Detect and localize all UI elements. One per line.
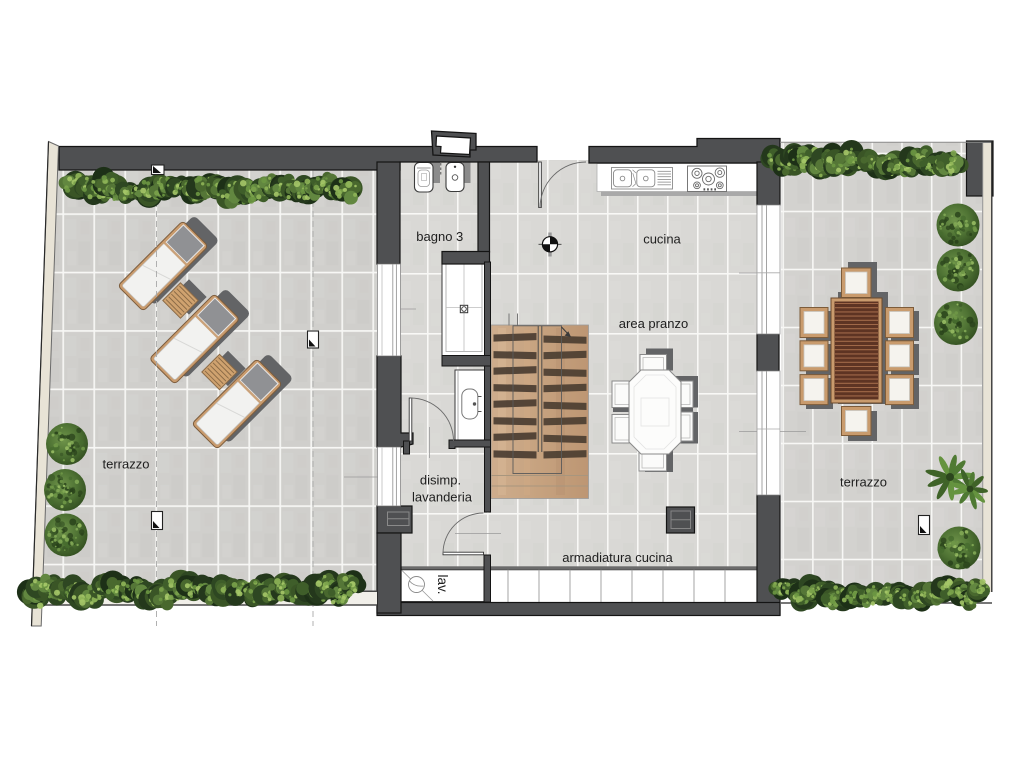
svg-text:lavanderia: lavanderia — [412, 490, 473, 505]
svg-text:armadiatura cucina: armadiatura cucina — [562, 550, 673, 565]
svg-text:bagno 3: bagno 3 — [416, 229, 463, 244]
svg-text:disimp.: disimp. — [420, 473, 461, 488]
svg-text:cucina: cucina — [643, 232, 681, 247]
svg-text:lav.: lav. — [435, 574, 450, 594]
svg-text:terrazzo: terrazzo — [103, 457, 150, 472]
svg-text:terrazzo: terrazzo — [840, 475, 887, 490]
svg-text:area pranzo: area pranzo — [619, 316, 688, 331]
